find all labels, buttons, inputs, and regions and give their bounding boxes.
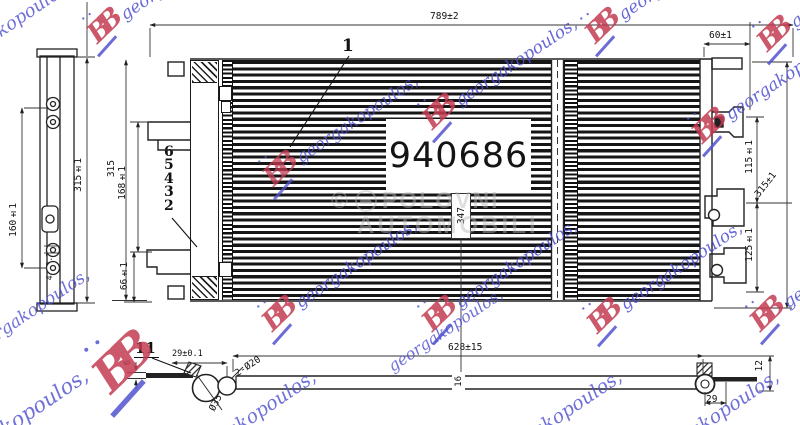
- dim-pipe-length: 628±15: [448, 343, 482, 353]
- pipe-width-dim-box: 16: [452, 372, 465, 391]
- watermark-script-fragment: georgakopoulos,: [483, 367, 626, 425]
- watermark-script-fragment: georgakopoulos,: [0, 0, 75, 76]
- georgakopoulos-logo-icon: ••BB: [751, 15, 795, 59]
- georgakopoulos-logo-icon: ••BB: [744, 295, 788, 339]
- fin-edge-strip-middle: [564, 60, 578, 300]
- dim-right-lower: 125±1: [745, 228, 755, 262]
- watermark-script-fragment: georgakopoulos,: [177, 367, 320, 425]
- part-number-box: 940686: [386, 119, 531, 193]
- receiver-drier: [190, 60, 219, 300]
- drier-fitting-bottom: [219, 262, 232, 277]
- georgakopoulos-logo-icon: ••BB: [581, 297, 625, 341]
- condenser-technical-drawing: 940686 347 16: [0, 0, 800, 425]
- dim-right-upper: 115±1: [745, 140, 755, 174]
- callout-1: 1: [342, 38, 354, 55]
- drier-top-cap: [192, 62, 217, 83]
- dim-left-total-height: 315±1: [74, 158, 84, 192]
- drier-fitting-top: [219, 86, 232, 101]
- dim-center-drop: 347: [456, 207, 467, 224]
- georgakopoulos-logo-icon: ••BB: [579, 7, 623, 51]
- dim-bottom-left: 66±1: [120, 262, 130, 290]
- callout-stack-65432: 6 5 4 3 2: [164, 146, 174, 213]
- dim-port-spacing: 29±0.1: [172, 350, 203, 359]
- watermark-georgakopoulos: ••BB georgakopoulos,: [579, 0, 748, 51]
- watermark-georgakopoulos: ••BB georgakopoulos,: [81, 0, 250, 51]
- drier-bottom-cap: [192, 276, 217, 298]
- dim-main-height: 315: [107, 160, 117, 177]
- watermark-script-fragment: georgakopoulos,: [0, 267, 93, 361]
- georgakopoulos-logo-icon: ••BB: [256, 295, 300, 339]
- watermark-georgakopoulos: ••BB georgakopoulos,: [686, 23, 800, 151]
- condenser-core-fins-right: [578, 60, 700, 300]
- part-number: 940686: [389, 136, 529, 176]
- dim-core-upper: 168±1: [118, 166, 128, 200]
- georgakopoulos-logo-icon: ••BB: [81, 7, 125, 51]
- center-drop-dim-box: 347: [451, 193, 471, 239]
- dim-port-note: 2-Ø20: [233, 355, 263, 379]
- watermark-georgakopoulos: ••BB georgakopoulos,: [751, 0, 800, 59]
- dim-side-gap: 4±0.2: [46, 252, 55, 280]
- watermark-script-fragment: georgakopoulos,: [0, 365, 92, 425]
- dim-pipe-width: 16: [454, 376, 464, 387]
- dim-pipe-thickness: 6: [124, 360, 133, 365]
- drier-fitting-top-2: [221, 101, 231, 113]
- dim-top-width: 789±2: [430, 12, 459, 22]
- dim-right-total: 315±1: [753, 171, 779, 200]
- dim-side-span: 160±1: [9, 203, 19, 237]
- dim-top-right-offset: 60±1: [709, 31, 732, 41]
- callout-11: 11: [134, 341, 159, 358]
- dim-port-diameter: Ø35: [208, 393, 225, 413]
